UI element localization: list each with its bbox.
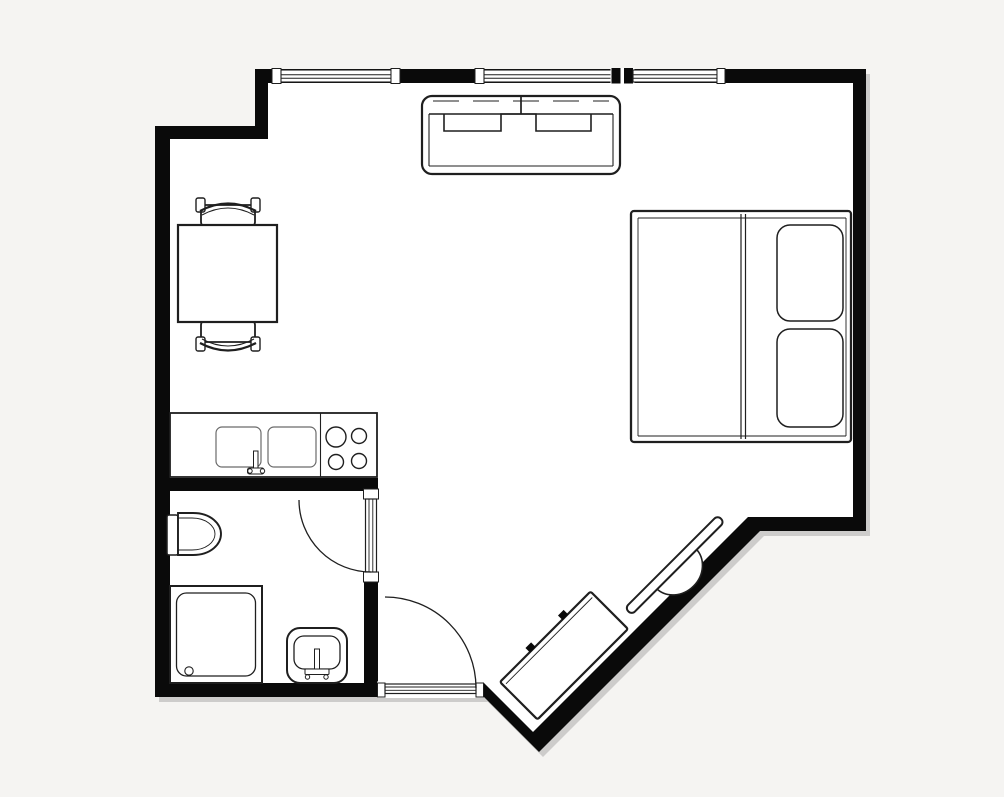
hob-burner (326, 427, 346, 447)
bed-pillow (777, 329, 843, 427)
kitchen-counter (170, 413, 377, 477)
floor-plan-canvas (0, 0, 1004, 797)
bathroom-east-wall-lower (364, 581, 378, 683)
bathroom-door-bottom-frame (364, 572, 379, 582)
window-1-right-frame (391, 69, 400, 84)
mullion-post (624, 68, 633, 84)
shower (170, 586, 262, 683)
washbasin-faucet-knob (324, 675, 328, 679)
window-3-right-frame (717, 69, 725, 84)
chair-south (196, 320, 260, 351)
washbasin (287, 628, 347, 683)
entry-door-leaf (385, 684, 476, 694)
window-1-left-frame (272, 69, 281, 84)
kitchen-faucet-stem (254, 451, 259, 470)
bathroom-door-top-frame (364, 489, 379, 499)
kitchen-faucet-knob (260, 469, 264, 473)
toilet-cistern (167, 515, 178, 555)
window-mullion (611, 68, 635, 84)
hob-burner (352, 454, 367, 469)
shower-tray (177, 593, 256, 676)
dining-table (178, 225, 277, 322)
hob-burner (329, 455, 344, 470)
bathroom-door-leaf (366, 499, 377, 572)
toilet (167, 513, 221, 555)
kitchen-faucet-knob (248, 469, 252, 473)
window-2-left-frame (475, 69, 484, 84)
hob-burner (352, 429, 367, 444)
sofa (422, 96, 620, 174)
window-2 (475, 69, 611, 84)
bathroom-north-wall (170, 478, 377, 491)
chair-seat (201, 320, 255, 342)
window-1 (272, 69, 400, 84)
window-3 (633, 69, 725, 84)
entry-door-right-frame (476, 683, 484, 697)
bed (631, 211, 851, 442)
window-2-glass (484, 70, 611, 82)
mullion-post (612, 68, 621, 84)
bed-pillow (777, 225, 843, 321)
washbasin-faucet-stem (315, 649, 320, 670)
floor-plan-page (0, 0, 1004, 797)
entry-door-left-frame (378, 683, 386, 697)
washbasin-faucet-knob (305, 675, 309, 679)
washbasin-faucet-base (305, 669, 329, 675)
window-1-glass (281, 70, 391, 82)
shower-drain (185, 667, 193, 675)
window-3-glass (633, 70, 717, 82)
kitchen-sink-basin-right (268, 427, 316, 467)
